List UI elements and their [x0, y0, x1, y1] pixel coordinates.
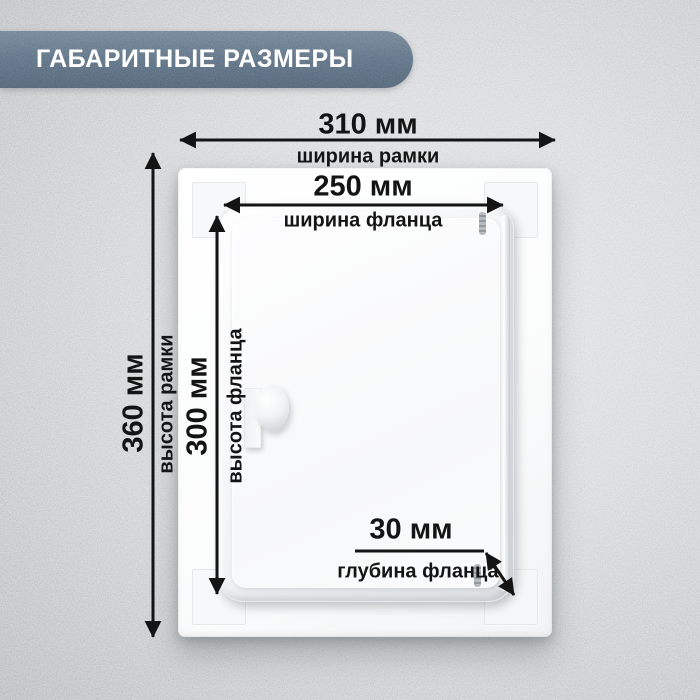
page-title: ГАБАРИТНЫЕ РАЗМЕРЫ	[0, 45, 354, 74]
dim-flange-depth-label: глубина фланца	[337, 561, 498, 584]
door-latch-knob	[255, 385, 289, 431]
dim-frame-width-label: ширина рамки	[297, 146, 440, 169]
dim-flange-height-label: высота фланца	[225, 328, 248, 483]
title-banner: ГАБАРИТНЫЕ РАЗМЕРЫ	[0, 31, 413, 88]
dim-flange-depth-value: 30 мм	[369, 514, 452, 547]
dim-frame-height-value: 360 мм	[118, 353, 151, 452]
product-dimensions-image: ГАБАРИТНЫЕ РАЗМЕРЫ 310 мм ширина рамки 2…	[0, 0, 700, 700]
dim-flange-width-value: 250 мм	[313, 171, 412, 204]
dim-flange-width-label: ширина фланца	[284, 210, 443, 233]
dim-flange-height-value: 300 мм	[182, 356, 215, 455]
screw-icon	[479, 212, 486, 235]
dim-frame-height-label: высота рамки	[156, 334, 179, 473]
dim-frame-width-value: 310 мм	[318, 109, 417, 142]
